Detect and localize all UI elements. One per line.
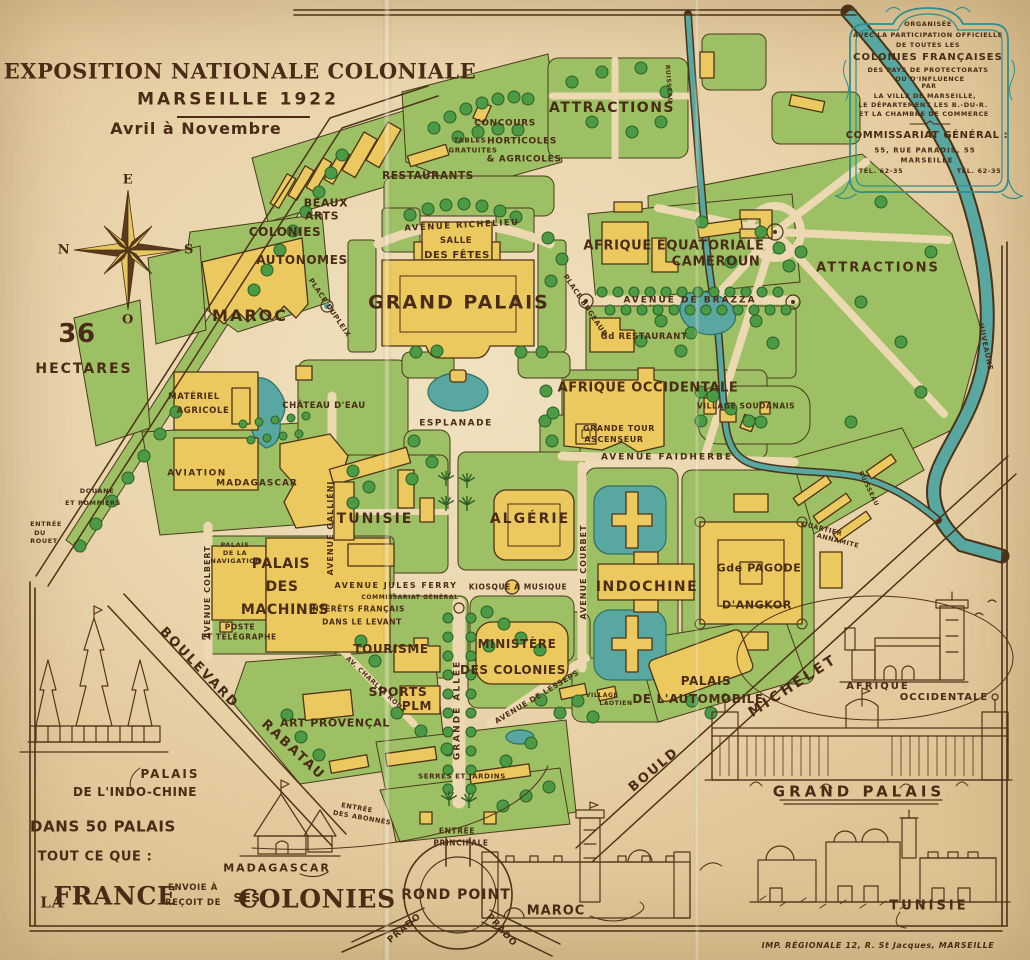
slogan-envoie: ENVOIE À — [168, 884, 218, 893]
label-pagode-angkor: D'ANGKOR — [722, 600, 792, 611]
label-tunisie: TUNISIE — [337, 512, 414, 526]
label-materiel-agricole: AGRICOLE — [177, 407, 230, 416]
label-poste: POSTE — [225, 623, 256, 631]
label-materiel-agricole: MATÉRIEL — [168, 393, 220, 402]
cartouche-tel: TÉL. 62-35 — [957, 168, 1002, 175]
label-art-provencal: ART PROVENÇAL — [280, 718, 390, 729]
label-navigation: PALAIS — [220, 542, 249, 549]
cartouche-line: AVEC LA PARTICIPATION OFFICIELLE — [853, 32, 1003, 39]
label-grand-palais: GRAND PALAIS — [368, 294, 550, 313]
vignette-label-indochine: PALAIS — [140, 768, 199, 780]
label-avenue-colbert: AVENUE COLBERT — [204, 545, 212, 638]
label-tourisme: TOURISME — [353, 643, 428, 655]
label-ministere-colonies: MINISTÈRE — [478, 638, 557, 650]
label-beaux-arts: ARTS — [305, 211, 339, 222]
label-douane: DOUANE — [80, 488, 115, 495]
label-attractions-top: ATTRACTIONS — [549, 101, 675, 115]
cartouche-city: MARSEILLE — [901, 158, 954, 165]
compass-north: N — [58, 244, 70, 257]
label-interets: INTÉRÊTS FRANÇAIS — [309, 605, 405, 613]
label-entree-rouet: DU — [34, 530, 46, 537]
date-range: Avril à Novembre — [110, 121, 282, 137]
label-beaux-arts: BEAUX — [304, 198, 349, 209]
label-madagascar: MADAGASCAR — [216, 480, 298, 489]
label-village-laotien: LAOTIEN — [599, 701, 632, 707]
area-value: 36 — [58, 321, 95, 347]
label-indochine: INDOCHINE — [596, 580, 698, 594]
label-salle-fetes: DES FÊTES — [424, 251, 490, 261]
slogan-colonies: COLONIES — [238, 887, 396, 912]
label-colonies-autonomes: AUTONOMES — [256, 254, 347, 266]
label-pagode-angkor: Gde PAGODE — [717, 563, 802, 574]
slogan-line: DANS 50 PALAIS — [30, 820, 176, 835]
vignette-label-grand-palais: GRAND PALAIS — [773, 785, 945, 800]
label-colonies-autonomes: COLONIES — [249, 226, 322, 238]
label-restaurants: RESTAURANTS — [382, 171, 474, 182]
label-palais-automobile: DE L'AUTOMOBILE — [632, 693, 763, 705]
label-afrique-equatoriale: AFRIQUE EQUATORIALE — [583, 240, 764, 253]
label-grande-tour: ASCENSEUR — [584, 436, 643, 444]
slogan-france: FRANCE — [53, 884, 176, 909]
label-concours: CONCOURS — [474, 120, 536, 129]
cartouche-line: ET LA CHAMBRE DE COMMERCE — [859, 111, 989, 118]
label-avenue-jules-ferry: AVENUE JULES FERRY — [335, 582, 458, 590]
label-kiosque: KIOSQUE À MUSIQUE — [469, 583, 568, 591]
label-avenue-gallieni: AVENUE GALLIÉNI — [327, 481, 335, 576]
map-sheet: EXPOSITION NATIONALE COLONIALE MARSEILLE… — [0, 0, 1030, 960]
label-entree-rouet: ROUET — [30, 538, 58, 545]
label-maroc: MAROC — [212, 308, 288, 324]
label-commissariat: COMMISSARIAT GÉNÉRAL — [361, 595, 458, 601]
label-cameroun: CAMEROUN — [672, 256, 761, 269]
label-gd-restaurant: Gd RESTAURANT — [601, 333, 688, 342]
label-chateau-eau: CHÂTEAU D'EAU — [282, 402, 366, 411]
cartouche-tel: TÉL. 62-35 — [859, 168, 904, 175]
label-entree-rouet: ENTRÉE — [30, 521, 62, 528]
slogan-line: TOUT CE QUE : — [38, 851, 153, 864]
label-ruisseau: RUISSEAU — [664, 65, 673, 104]
cartouche-line: PAR — [922, 84, 937, 90]
label-aviation: AVIATION — [167, 470, 227, 479]
label-avenue-faidherbe: AVENUE FAIDHERBE — [601, 454, 733, 463]
label-attractions-right: ATTRACTIONS — [816, 262, 940, 275]
compass-west: O — [122, 314, 134, 327]
label-poste: ET TÉLÉGRAPHE — [201, 633, 276, 641]
label-palais-automobile: PALAIS — [681, 675, 732, 687]
label-concours: & AGRICOLES — [487, 156, 562, 165]
label-salle-fetes: SALLE — [440, 237, 472, 246]
imprint: IMP. RÉGIONALE 12, R. St Jacques, MARSEI… — [762, 942, 995, 950]
slogan-recoit: REÇOIT DE — [165, 899, 221, 908]
vignette-label-madagascar: MADAGASCAR — [223, 863, 331, 874]
cartouche-line: OU D'INFLUENCE — [895, 76, 964, 83]
title-underline — [177, 116, 310, 118]
cartouche-line: DE TOUTES LES — [896, 42, 960, 49]
label-navigation: DE LA — [223, 550, 247, 557]
cartouche-commissariat: COMMISSARIAT GÉNÉRAL : — [846, 131, 1009, 141]
label-douane: ET POMPIERS — [65, 500, 121, 507]
cartouche-colonies: COLONIES FRANÇAISES — [853, 53, 1003, 63]
label-village-soudanais: VILLAGE SOUDANAIS — [697, 402, 795, 410]
vignette-label-afrique-occidentale: OCCIDENTALE — [900, 693, 988, 703]
label-tables: TABLES — [454, 138, 487, 145]
label-ministere-colonies: DES COLONIES — [460, 664, 566, 676]
label-afrique-occidentale: AFRIQUE OCCIDENTALE — [558, 382, 739, 395]
cartouche-line: LE DÉPARTEMENT LES B.-DU-R. — [858, 102, 987, 109]
cartouche-address: 55, RUE PARADIS, 55 — [874, 148, 975, 155]
cartouche-line: DES PAYS DE PROTECTORATS — [867, 67, 988, 74]
vignette-label-indochine: DE L'INDO-CHINE — [73, 786, 197, 798]
label-grande-tour: GRANDE TOUR — [583, 425, 655, 433]
area-unit: HECTARES — [35, 362, 132, 376]
page-subtitle: MARSEILLE 1922 — [137, 92, 339, 109]
page-title: EXPOSITION NATIONALE COLONIALE — [4, 61, 476, 82]
label-serres-jardins: SERRES ET JARDINS — [418, 774, 506, 781]
label-avenue-courbet: AVENUE COURBET — [580, 524, 588, 619]
label-avenue-brazza: AVENUE DE BRAZZA — [623, 297, 756, 306]
label-algerie: ALGÉRIE — [490, 512, 570, 526]
vignette-label-maroc: MAROC — [527, 905, 586, 918]
label-palais-machines: DES — [265, 580, 298, 594]
cartouche-line: ORGANISÉE — [904, 21, 952, 28]
label-entree-principale: ENTRÉE — [439, 827, 475, 835]
compass-south: S — [184, 244, 194, 257]
label-tables: GRATUITES — [448, 148, 497, 155]
vignette-label-tunisie: TUNISIE — [889, 900, 968, 913]
label-interets: DANS LE LEVANT — [322, 618, 402, 626]
vignette-label-afrique-occidentale: AFRIQUE — [846, 682, 909, 692]
label-concours: HORTICOLES — [487, 138, 557, 147]
compass-east: E — [123, 174, 134, 187]
label-rond-point: ROND POINT — [401, 888, 511, 902]
label-entree-principale: PRINCIPALE — [433, 839, 488, 847]
label-village-laotien: VILLAGE — [586, 693, 618, 699]
cartouche-line: LA VILLE DE MARSEILLE, — [874, 93, 976, 100]
label-esplanade: ESPLANADE — [419, 420, 493, 429]
label-palais-machines: PALAIS — [252, 557, 310, 571]
